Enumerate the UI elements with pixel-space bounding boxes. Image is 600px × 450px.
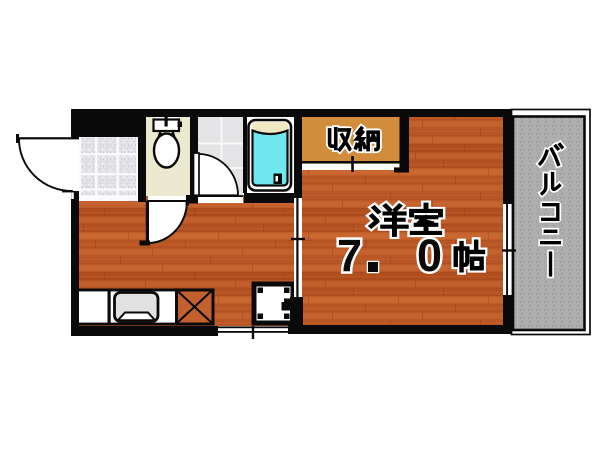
svg-text:0: 0 (417, 230, 442, 281)
svg-text:7: 7 (337, 230, 362, 281)
